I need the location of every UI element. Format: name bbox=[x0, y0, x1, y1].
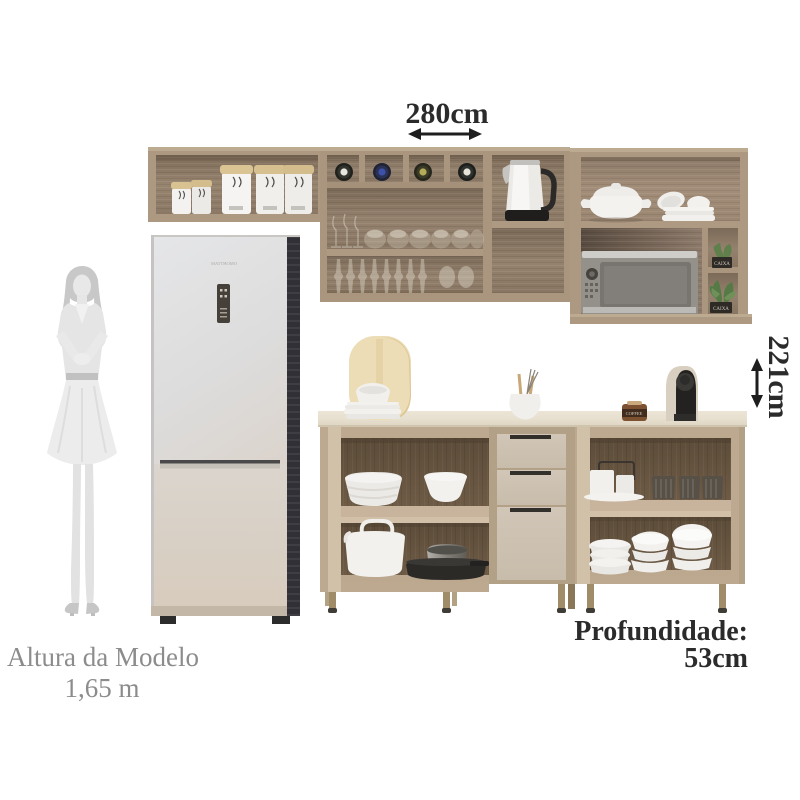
svg-text:280cm: 280cm bbox=[405, 97, 488, 130]
svg-text:CAIXA: CAIXA bbox=[713, 307, 729, 312]
svg-text:53cm: 53cm bbox=[684, 643, 748, 674]
svg-text:COFFEE: COFFEE bbox=[626, 411, 643, 416]
svg-text:CAIXA: CAIXA bbox=[714, 262, 730, 267]
svg-text:MATTHOMO: MATTHOMO bbox=[211, 261, 238, 266]
svg-text:221cm: 221cm bbox=[762, 335, 795, 418]
svg-text:Altura da Modelo: Altura da Modelo bbox=[7, 642, 199, 672]
svg-text:1,65 m: 1,65 m bbox=[64, 673, 139, 703]
